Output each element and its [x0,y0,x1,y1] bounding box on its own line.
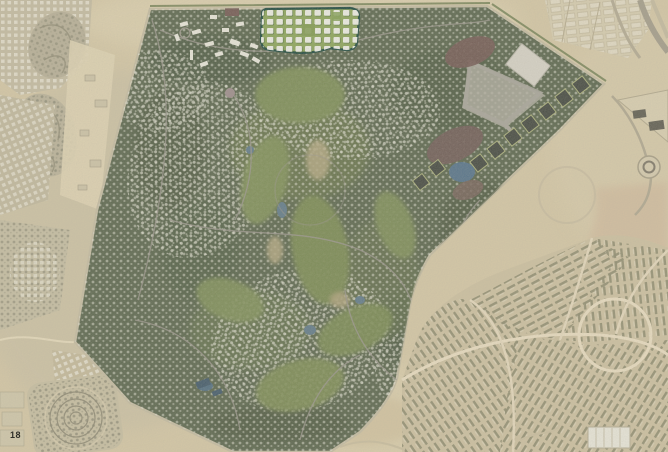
map-canvas [0,0,668,452]
masterplan-satellite-map: 18 [0,0,668,452]
satellite-grain-overlay [0,0,668,452]
page-number: 18 [10,430,21,440]
